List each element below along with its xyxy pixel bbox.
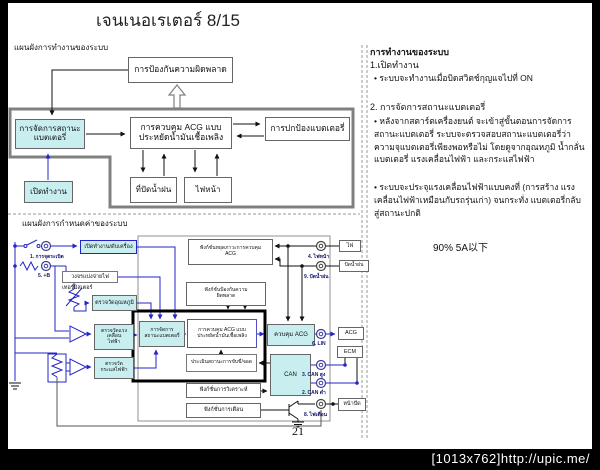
temp-measure-box: ตรวจวัดอุณหภูมิ <box>92 295 137 311</box>
panel-section2-bullet1: • หลังจากสตาร์ตเครื่องยนต์ จะเข้าสู่ขั้น… <box>374 115 586 166</box>
driving-eval-box: ประเมินสถานะการขับขี่/จอด <box>186 354 257 372</box>
ground-left <box>9 383 21 389</box>
acg-ctrl-box: ควบคุม ACG <box>267 324 315 346</box>
thermistor-label: เทอร์มิสเตอร์ <box>62 284 92 292</box>
pin-warning-label: 8. ไฟเตือน <box>304 411 327 419</box>
switch-lever-icon <box>27 240 37 245</box>
flow-diagram-label: แผนผังการทำงานของระบบ <box>14 41 108 54</box>
panel-note: 90% 5A以下 <box>433 239 488 254</box>
panel-section1-bullet: • ระบบจะทำงานเมื่อบิดสวิตช์กุญแจไปที่ ON <box>374 72 586 85</box>
wiper-box: ที่ปัดน้ำฝน <box>130 177 177 203</box>
pin-lin-label: 6. LIN <box>312 341 326 347</box>
pin-can-low-label: 2. CAN ต่ำ <box>302 389 326 397</box>
acg-fuel-control-box: การควบคุม ACG แบบ ประหยัดน้ำมันเชื้อเพลิ… <box>187 319 257 348</box>
page-number: 21 <box>278 424 318 439</box>
device-light-box: ไฟ <box>339 240 361 252</box>
transistor-icon <box>289 401 298 422</box>
fuse-resistor-icon <box>20 262 38 270</box>
panel-section2-title: 2. การจัดการสถานะแบตเตอรี่ <box>370 100 485 114</box>
pin-headlight-label: 4. ไฟหน้า <box>308 253 329 261</box>
hollow-up-arrow <box>169 85 185 108</box>
pin-lin-icon <box>317 330 326 339</box>
opamp-voltage-icon <box>70 326 86 342</box>
switch-terminal-1 <box>24 245 27 248</box>
power-divider-box: วงจรแบ่งจ่ายไฟ <box>62 271 118 283</box>
pin-warning-icon <box>317 400 326 409</box>
battery-protection-box: การปกป้องแบตเตอรี่ <box>265 117 350 141</box>
headlight-box: ไฟหน้า <box>184 177 232 203</box>
device-wiper-box: ปัดน้ำฝน <box>339 260 369 272</box>
pin-can-high-label: 3. CAN สูง <box>302 371 325 379</box>
acg-control-box: การควบคุม ACG แบบ ประหยัดน้ำมันเชื้อเพลิ… <box>130 117 232 149</box>
diagnosis-function-box: ฟังก์ชั่นการวิเคราะห์ <box>186 383 261 398</box>
pin-plusb-icon <box>42 262 51 271</box>
pin-headlight-icon <box>317 242 326 251</box>
device-acg-box: ACG <box>338 327 364 340</box>
panel-section1-title: 1.เปิดทำงาน <box>370 58 419 72</box>
start-stop-box: เปิดทำงาน/ดับเครื่อง <box>80 240 137 254</box>
volt-measure-box: ตรวจวัดแรง เคลื่อน ไฟฟ้า <box>94 324 134 350</box>
switch-terminal-2 <box>37 245 40 248</box>
page-title: เจนเนอเรเตอร์ 8/15 <box>68 7 268 34</box>
config-diagram-label: แผนผังการกำหนดค่าของระบบ <box>22 217 128 230</box>
wire-wiper-pin <box>275 259 339 266</box>
wire-startstop-batmgmt <box>137 247 175 319</box>
panel-section2-bullet2: • ระบบจะประจุแรงเคลื่อนไฟฟ้าแบบคงที่ (กา… <box>374 181 586 219</box>
battery-management-box: การจัดการสถานะ แบตเตอรี่ <box>15 119 85 149</box>
pin-wiper-icon <box>317 262 326 271</box>
error-prevention-box: การป้องกันความผิดพลาด <box>128 57 233 83</box>
error-function-box: ฟังก์ชั่นป้องกันความ ผิดพลาด <box>186 282 266 306</box>
watermark-url: [1013x762]http://upic.me/ <box>432 451 590 466</box>
pin-wiper-label: 9. ปัดน้ำฝน <box>304 273 329 281</box>
panel-heading: การทำงานของระบบ <box>370 45 449 59</box>
pin-can-low-icon <box>317 379 326 388</box>
opamp-current-icon <box>70 359 86 375</box>
device-panel-box: หน้าปัด <box>338 398 366 411</box>
warning-function-box: ฟังก์ชั่นการเตือน <box>186 403 261 418</box>
slide: เจนเนอเรเตอร์ 8/15 แผนผังการทำงานของระบบ… <box>8 3 592 449</box>
pin-ignition-label: 1. การจุดระเบิด <box>30 253 64 261</box>
pin-plusb-label: 5. +B <box>38 273 50 279</box>
power-on-box: เปิดทำงาน <box>24 181 73 203</box>
pin-can-high-icon <box>317 361 326 370</box>
battery-management2-box: การจัดการ สถานะแบตเตอรี่ <box>139 321 185 347</box>
stop-function-box: ฟังก์ชั่นหยุดภาวะการควบคุม ACG <box>188 239 273 265</box>
wire-thermistor-temp <box>74 303 89 311</box>
current-measure-box: ตรวจวัด กระแสไฟฟ้า <box>94 357 134 379</box>
wire-shunt-opamp2 <box>66 363 70 371</box>
wire-curr-batmgmt <box>134 350 156 368</box>
pin-ignition-icon <box>42 242 51 251</box>
screenshot-stage: เจนเนอเรเตอร์ 8/15 แผนผังการทำงานของระบบ… <box>0 0 600 470</box>
device-ecm-box: ECM <box>337 346 363 358</box>
shunt-zigzag-icon <box>52 354 62 377</box>
